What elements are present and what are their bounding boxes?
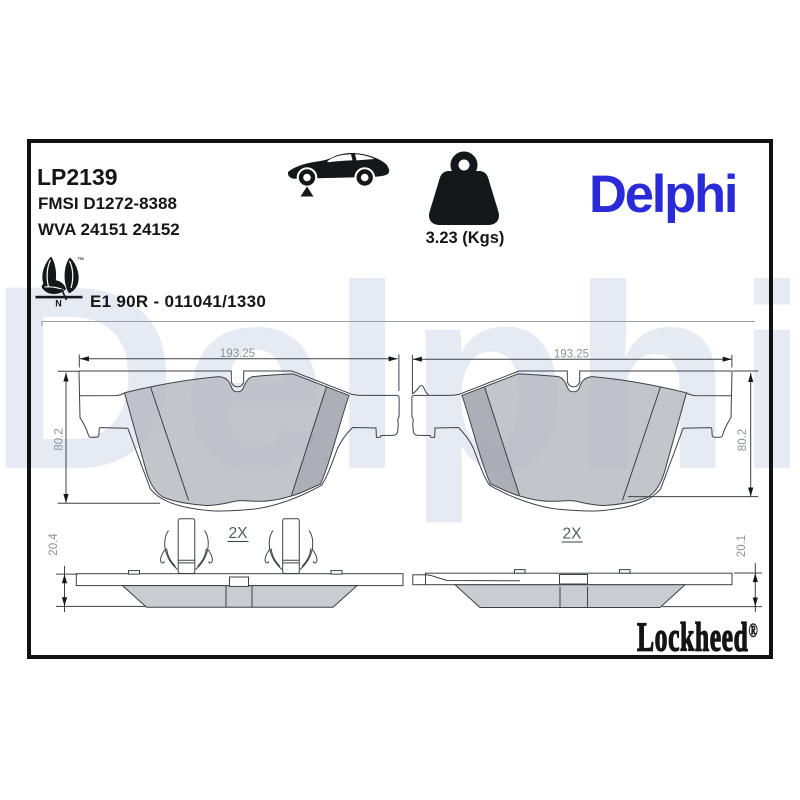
svg-text:20.4: 20.4 [48,533,60,556]
svg-text:20.1: 20.1 [736,535,748,557]
svg-text:80.2: 80.2 [737,429,749,451]
svg-text:2X: 2X [229,525,249,542]
svg-text:193.25: 193.25 [554,349,589,361]
svg-text:2X: 2X [563,526,583,543]
svg-text:80.2: 80.2 [54,428,66,450]
svg-text:193.25: 193.25 [220,348,255,360]
